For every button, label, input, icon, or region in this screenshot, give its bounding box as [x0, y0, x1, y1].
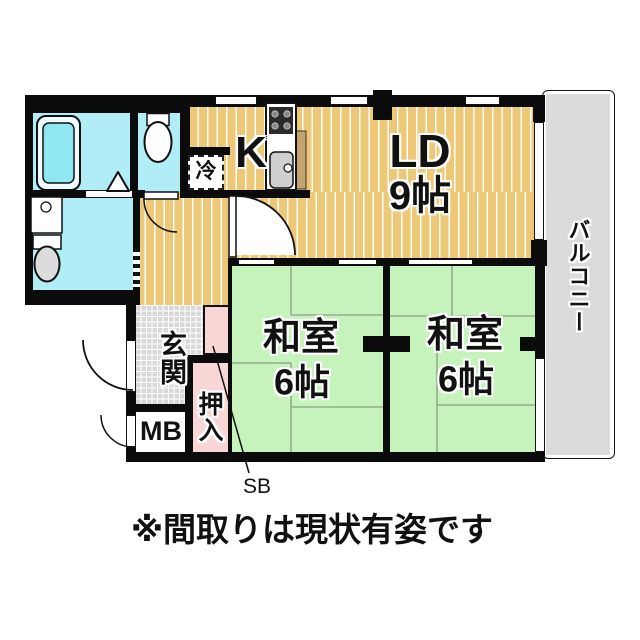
toilet-door — [144, 192, 178, 232]
ld-door — [229, 196, 295, 257]
ld-size-label: 9帖 — [389, 176, 451, 218]
entrance-door-arc — [83, 340, 133, 390]
floor-plan: K 冷 LD 9帖 和室 6帖 和室 6帖 玄関 押入 MB SB バルコニー … — [0, 0, 640, 640]
ld-label: LD — [389, 128, 450, 176]
bath-folding-door-mark — [107, 172, 129, 191]
meter-box-door-arc — [101, 415, 133, 447]
japanese-room-right-label: 和室 — [427, 316, 503, 356]
kitchen-label: K — [235, 130, 267, 176]
kitchen-unit — [266, 103, 306, 190]
balcony-label: バルコニー — [566, 219, 589, 334]
washbasin — [31, 197, 62, 233]
japanese-room-left-size: 6帖 — [274, 363, 330, 400]
shoe-box-label: SB — [243, 476, 271, 498]
meter-box-label: MB — [140, 417, 182, 445]
toilet — [145, 114, 172, 163]
japanese-room-left-label: 和室 — [263, 319, 339, 359]
refrigerator-label: 冷 — [196, 161, 217, 183]
japanese-room-right-size: 6帖 — [438, 360, 494, 397]
entrance-label: 玄関 — [157, 330, 185, 386]
closet-label: 押入 — [196, 391, 222, 443]
toilet-2 — [33, 235, 61, 282]
caption: ※間取りは現状有姿です — [131, 513, 493, 547]
bathtub — [37, 116, 80, 190]
